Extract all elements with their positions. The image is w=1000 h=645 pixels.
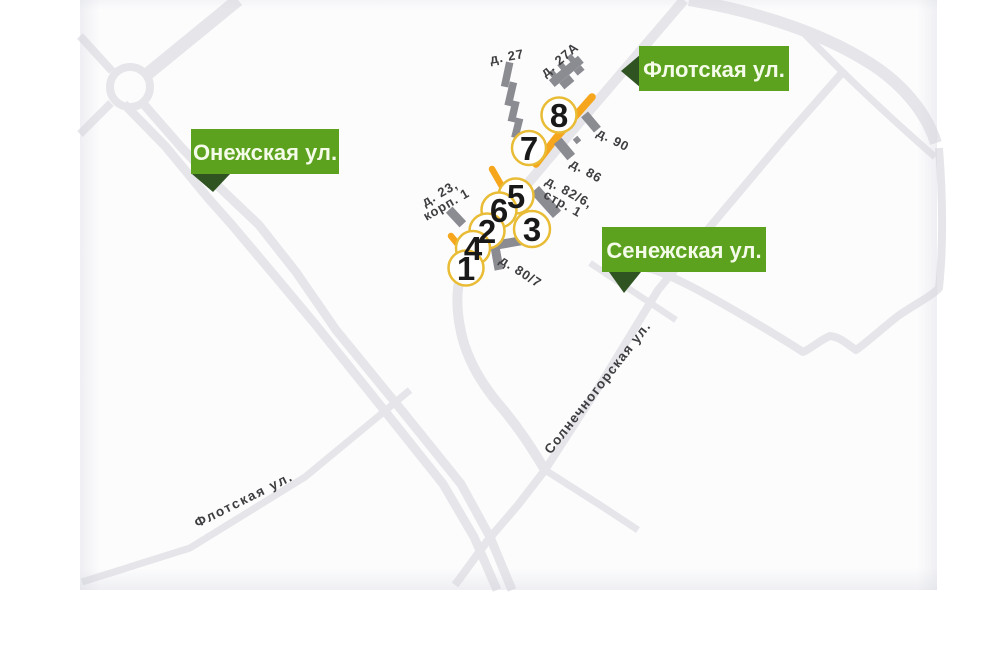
svg-text:1: 1: [457, 250, 475, 287]
svg-text:5: 5: [507, 178, 525, 215]
svg-text:3: 3: [523, 211, 541, 248]
svg-text:7: 7: [520, 130, 538, 167]
svg-text:Сенежская ул.: Сенежская ул.: [606, 238, 761, 263]
svg-text:Флотская ул.: Флотская ул.: [643, 57, 785, 82]
svg-text:8: 8: [550, 97, 568, 134]
svg-text:Онежская ул.: Онежская ул.: [193, 140, 337, 165]
